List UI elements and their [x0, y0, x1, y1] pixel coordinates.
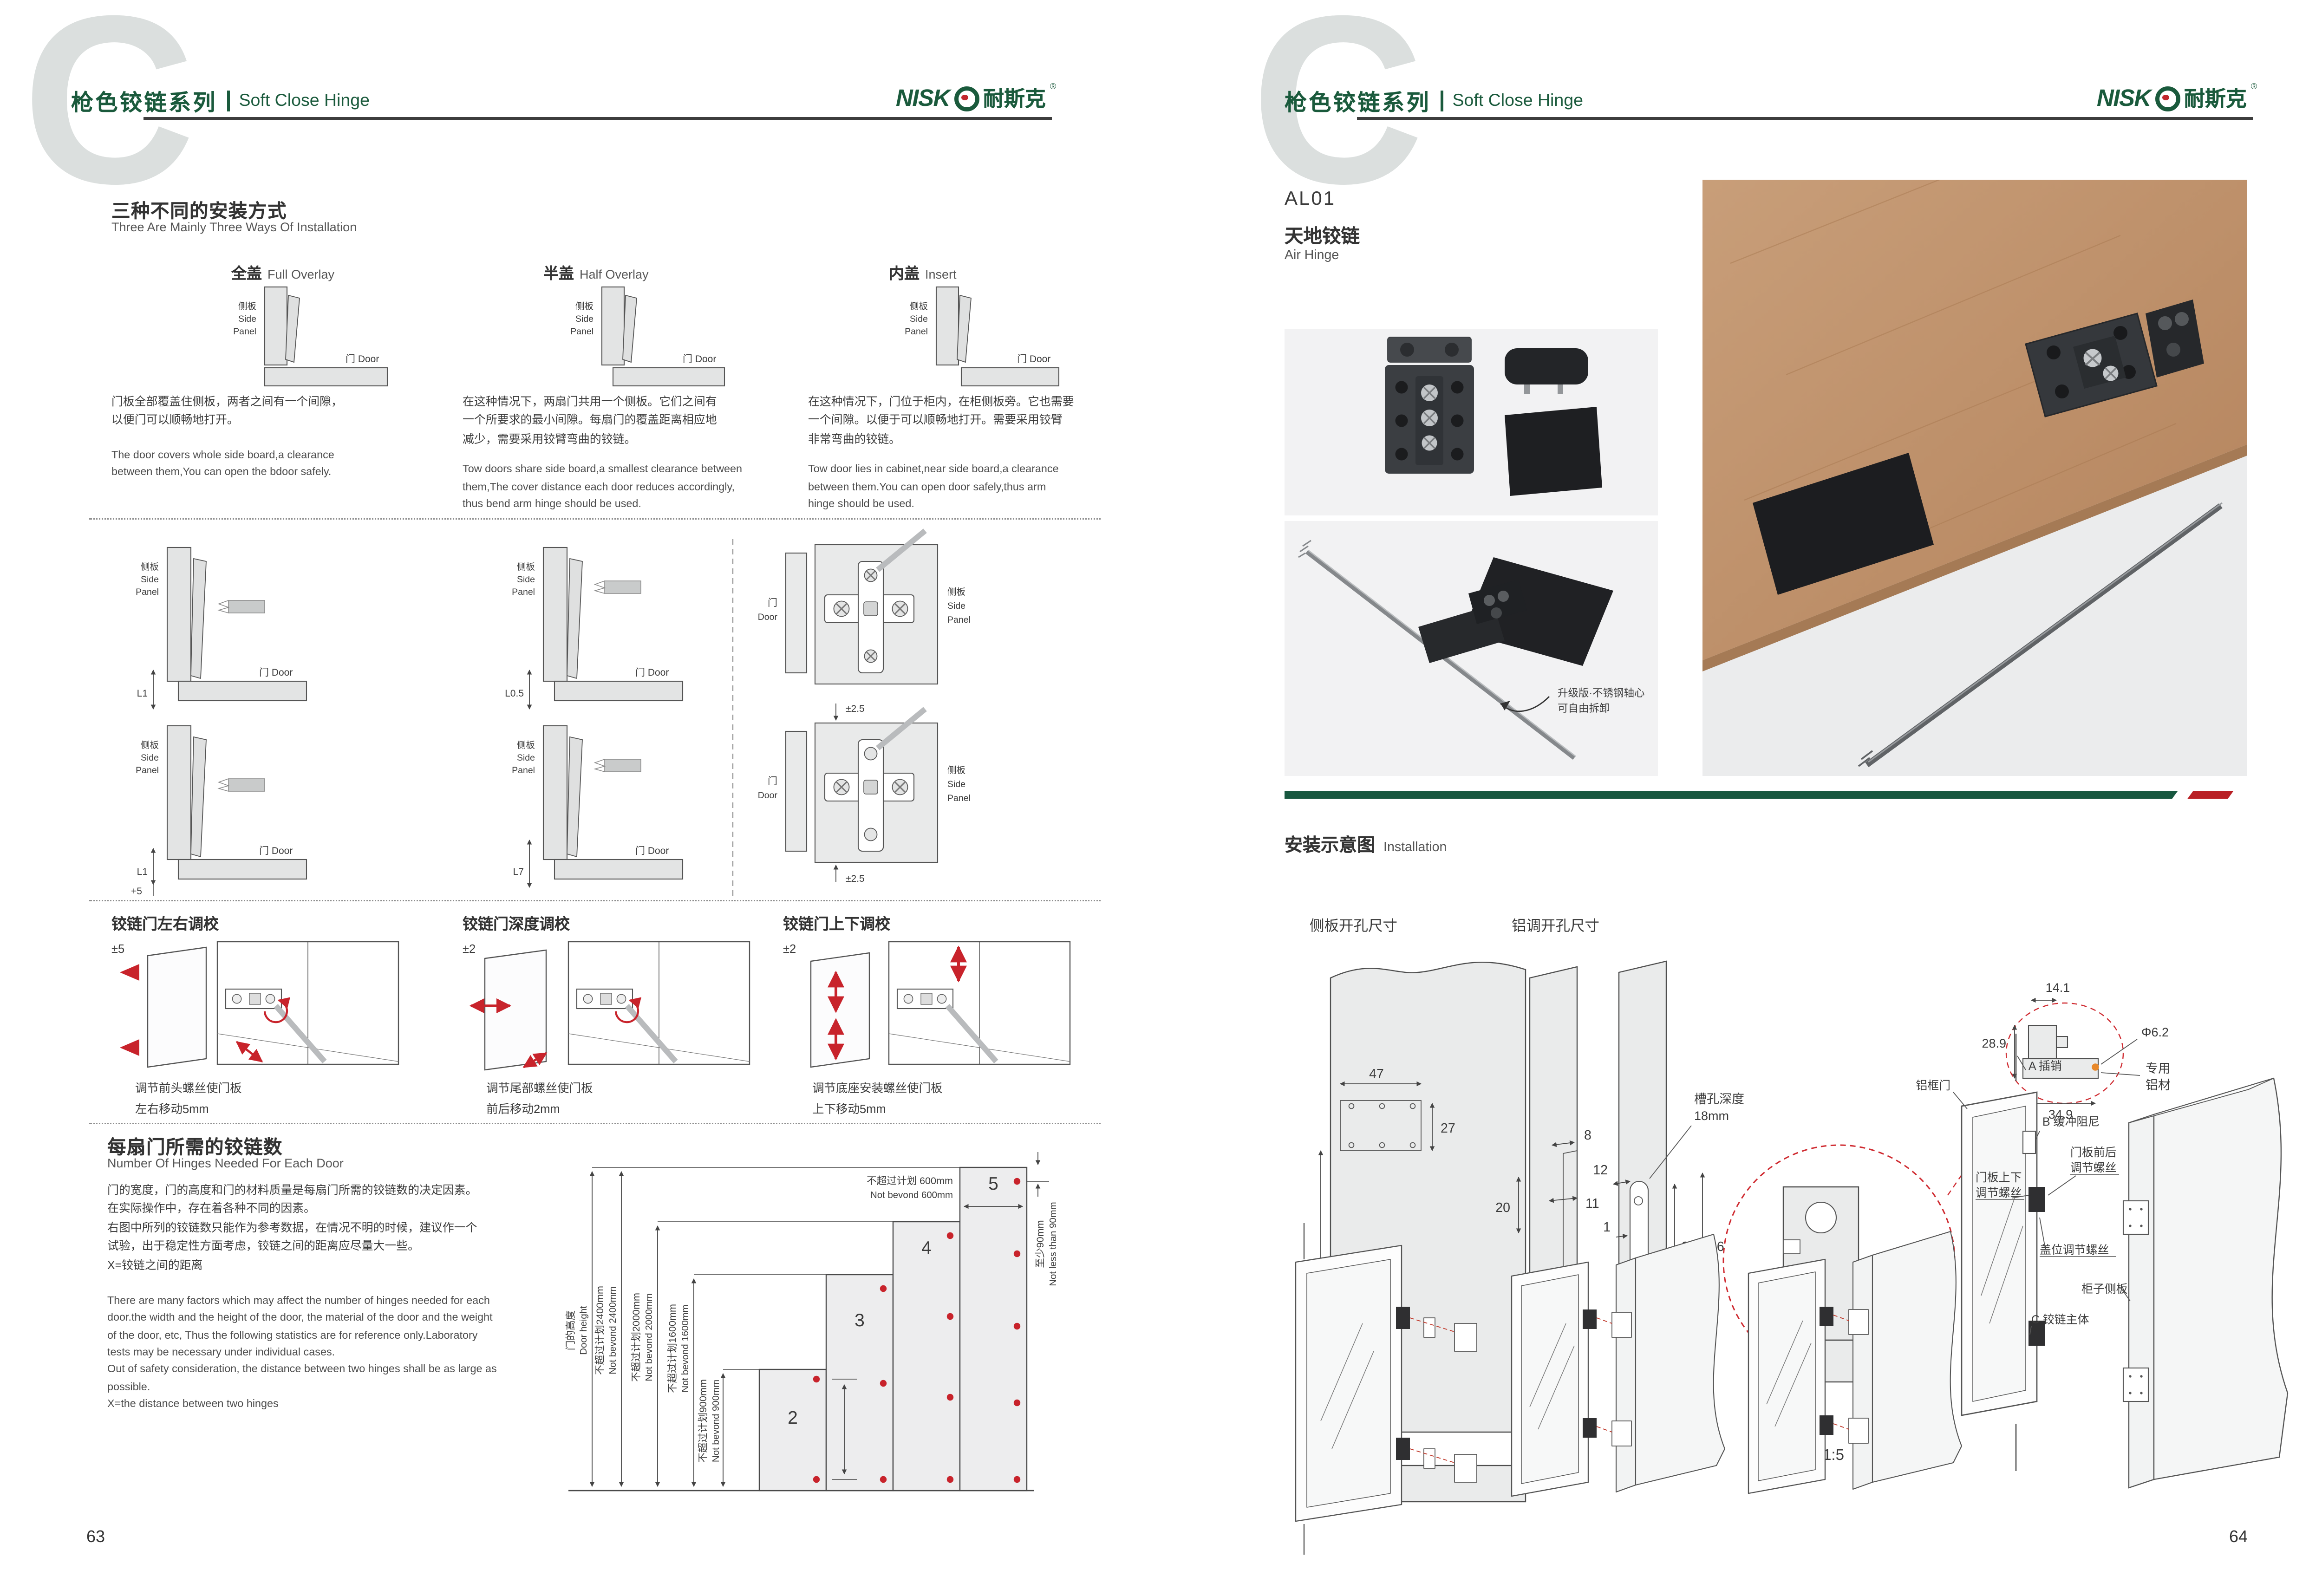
svg-text:A 插销: A 插销	[2028, 1060, 2062, 1073]
svg-text:Panel: Panel	[947, 793, 971, 803]
svg-text:Panel: Panel	[136, 765, 159, 775]
svg-text:L0.5: L0.5	[505, 688, 524, 699]
svg-text:门: 门	[768, 776, 777, 787]
hinge-count-para-zh: 门的宽度，门的高度和门的材料质量是每扇门所需的铰链数的决定因素。 在实际操作中，…	[107, 1181, 553, 1275]
diagram-half-overlay: 侧板 Side Panel 门 Door	[515, 281, 808, 396]
drill-bit-icon	[605, 759, 641, 772]
svg-text:不超过计划900mm: 不超过计划900mm	[697, 1379, 709, 1463]
cabinet-side	[2154, 1078, 2288, 1479]
svg-text:Side: Side	[947, 601, 965, 611]
svg-text:Door height: Door height	[579, 1306, 589, 1355]
header-rule-left	[143, 117, 1052, 119]
exploded-assembly-labeled: 铝框门 A 插销 B 缓冲阻尼 门板前后 调节螺丝 门板上下 调节螺丝 盖位调节…	[1916, 1034, 2288, 1488]
exploded-assembly-sequence	[1296, 1223, 1962, 1555]
page-header-right: 枪色铰链系列 Soft Close Hinge	[1285, 84, 1583, 117]
desc-half-overlay-en: Tow doors share side board,a smallest cl…	[463, 462, 804, 513]
desc-insert-zh: 在这种情况下，门位于柜内，在柜侧板旁。它也需要 一个间隙。以便于可以顺畅地打开。…	[808, 393, 1149, 449]
svg-text:侧板: 侧板	[947, 587, 965, 597]
svg-text:门 Door: 门 Door	[259, 667, 293, 678]
door-panel	[148, 947, 206, 1067]
svg-text:铝框门: 铝框门	[1916, 1079, 1950, 1092]
hinge-count-chart: 门的高度 Door height 不超过计划2400mm Not bevond …	[557, 1142, 1059, 1507]
svg-text:Side: Side	[517, 574, 535, 585]
svg-text:门 Door: 门 Door	[635, 667, 669, 678]
page-number-left: 63	[86, 1527, 105, 1546]
svg-text:侧板: 侧板	[238, 301, 256, 312]
svg-text:Not bevond 600mm: Not bevond 600mm	[870, 1190, 953, 1200]
arrow-left-icon	[120, 1039, 139, 1056]
hinge-count-heading-en: Number Of Hinges Needed For Each Door	[107, 1156, 344, 1170]
catalog-spread: C 枪色铰链系列 Soft Close Hinge NISK 耐斯克 ® 三种不…	[0, 0, 2322, 1596]
drill-bit-icon	[228, 779, 265, 791]
cabinet-front-edge	[2129, 1114, 2154, 1488]
series-title-en: Soft Close Hinge	[1453, 91, 1583, 110]
svg-text:Door: Door	[758, 612, 778, 622]
svg-text:门板前后: 门板前后	[2070, 1146, 2117, 1159]
type-label-half-overlay: 半盖 Half Overlay	[543, 262, 649, 284]
svg-text:Panel: Panel	[947, 615, 971, 625]
series-title-en: Soft Close Hinge	[239, 91, 370, 110]
page-number-right: 64	[2229, 1527, 2248, 1546]
type-label-insert: 内盖 Insert	[889, 262, 957, 284]
svg-text:8: 8	[1584, 1128, 1591, 1143]
svg-text:Not bevond 1600mm: Not bevond 1600mm	[680, 1304, 691, 1392]
bar-2-hinges	[759, 1369, 826, 1491]
svg-text:侧板: 侧板	[575, 301, 594, 312]
svg-text:Side: Side	[947, 779, 965, 789]
svg-text:Side: Side	[517, 753, 535, 763]
diagram-dim-L1: 侧板 Side Panel 门 Door L1	[136, 547, 307, 709]
hinge-arm-icon	[286, 295, 300, 362]
cabinet	[1853, 1255, 1872, 1489]
svg-text:门的高度: 门的高度	[565, 1310, 576, 1350]
svg-text:Door: Door	[758, 790, 778, 801]
svg-text:1:5: 1:5	[1823, 1446, 1844, 1463]
header-divider	[1441, 90, 1443, 111]
product-photo-rod: 升级版·不锈钢轴心 可自由拆卸	[1285, 521, 1658, 776]
svg-text:L7: L7	[513, 866, 524, 877]
svg-text:Side: Side	[575, 314, 594, 324]
divider-band-red	[2187, 791, 2233, 799]
logo-zh: 耐斯克	[983, 84, 1046, 113]
svg-text:2: 2	[788, 1408, 798, 1428]
svg-text:C 铰链主体: C 铰链主体	[2031, 1313, 2089, 1326]
drill-bit-icon	[228, 600, 265, 613]
drill-bit-icon	[605, 581, 641, 593]
svg-text:Panel: Panel	[570, 326, 594, 337]
bar-4-hinges	[893, 1222, 960, 1491]
logo-o-icon	[2155, 86, 2180, 111]
page-header-left: 枪色铰链系列 Soft Close Hinge	[71, 84, 370, 117]
adjust-title-ud: 铰链门上下调校	[783, 912, 890, 935]
diagram-mounting-plate-1: 门 Door 侧板 Side Panel	[758, 531, 971, 684]
svg-text:柜子侧板: 柜子侧板	[2081, 1283, 2128, 1296]
svg-text:4: 4	[921, 1238, 932, 1258]
desc-half-overlay-zh: 在这种情况下，两扇门共用一个侧板。它们之间有 一个所要求的最小间隙。每扇门的覆盖…	[463, 393, 804, 449]
svg-text:Panel: Panel	[233, 326, 256, 337]
svg-text:门: 门	[768, 598, 777, 608]
svg-text:槽孔深度: 槽孔深度	[1694, 1092, 1744, 1106]
installation-drawing: 侧板开孔尺寸 铝调开孔尺寸 47 27 77 25 8 20	[1240, 878, 2313, 1555]
side-drill-title: 侧板开孔尺寸	[1310, 917, 1397, 934]
svg-text:侧板: 侧板	[517, 562, 535, 572]
svg-text:+5: +5	[131, 886, 142, 897]
svg-text:Panel: Panel	[136, 587, 159, 597]
logo-latin: NISK	[896, 85, 950, 112]
svg-text:27: 27	[1441, 1121, 1455, 1136]
svg-text:不超过计划2400mm: 不超过计划2400mm	[594, 1286, 606, 1375]
svg-text:±2: ±2	[783, 943, 796, 956]
svg-text:12: 12	[1593, 1163, 1608, 1178]
desc-full-overlay-en: The door covers whole side board,a clear…	[111, 447, 446, 482]
logo-o-icon	[954, 86, 979, 111]
svg-text:3: 3	[854, 1310, 865, 1330]
hinge-count-heading-zh: 每扇门所需的铰链数	[107, 1131, 283, 1159]
svg-text:14.1: 14.1	[2046, 981, 2070, 995]
diagram-dim-L05: 侧板 Side Panel 门 Door L0.5	[505, 547, 683, 709]
hinge-cap	[1505, 348, 1588, 384]
svg-text:B 缓冲阻尼: B 缓冲阻尼	[2042, 1115, 2100, 1128]
adjust-note-ud: 调节底座安装螺丝使门板 上下移动5mm	[812, 1078, 943, 1120]
photo-main-illustration	[1702, 180, 2247, 776]
dotted-divider-1	[89, 518, 1101, 520]
diagram-full-overlay: 侧板 Side Panel 门 Door	[178, 281, 471, 396]
damper	[2023, 1131, 2035, 1153]
svg-text:5: 5	[988, 1174, 998, 1194]
svg-text:L1: L1	[137, 688, 148, 699]
adjust-note-depth: 调节尾部螺丝使门板 前后移动2mm	[486, 1078, 593, 1120]
svg-text:至少90mm: 至少90mm	[1034, 1220, 1046, 1268]
svg-text:侧板: 侧板	[141, 740, 159, 750]
product-photo-parts	[1285, 329, 1658, 515]
product-name-en: Air Hinge	[1285, 248, 1339, 263]
series-title-zh: 枪色铰链系列	[1285, 84, 1431, 117]
svg-text:门 Door: 门 Door	[1017, 354, 1050, 365]
hinge-count-para-en: There are many factors which may affect …	[107, 1293, 553, 1413]
divider-band-green	[1285, 791, 2178, 799]
alu-drill-title: 铝调开孔尺寸	[1512, 917, 1599, 934]
svg-text:侧板: 侧板	[141, 562, 159, 572]
header-divider	[227, 90, 229, 111]
svg-text:门 Door: 门 Door	[683, 354, 716, 365]
nisko-logo-right: NISK 耐斯克 ®	[2097, 84, 2257, 113]
svg-text:升级版·不锈钢轴心: 升级版·不锈钢轴心	[1558, 687, 1645, 699]
dotted-divider-2	[89, 900, 1101, 901]
series-title-zh: 枪色铰链系列	[71, 84, 217, 117]
svg-text:不超过计划1600mm: 不超过计划1600mm	[666, 1304, 678, 1393]
svg-text:47: 47	[1369, 1067, 1384, 1081]
svg-text:Side: Side	[238, 314, 256, 324]
desc-insert: 在这种情况下，门位于柜内，在柜侧板旁。它也需要 一个间隙。以便于可以顺畅地打开。…	[808, 393, 1149, 513]
svg-text:±2: ±2	[463, 943, 476, 956]
hinge-arm-icon	[957, 295, 971, 362]
svg-text:Panel: Panel	[512, 587, 535, 597]
svg-text:盖位调节螺丝: 盖位调节螺丝	[2040, 1244, 2109, 1257]
svg-text:门 Door: 门 Door	[346, 354, 379, 365]
svg-text:28.9: 28.9	[1982, 1036, 2006, 1050]
installation-heading: 安装示意图 Installation	[1285, 830, 1447, 857]
desc-full-overlay-zh: 门板全部覆盖住侧板，两者之间有一个间隙， 以便门可以顺畅地打开。	[111, 393, 446, 430]
svg-text:L1: L1	[137, 866, 148, 877]
logo-red-dot-icon	[2162, 94, 2169, 100]
svg-text:Panel: Panel	[512, 765, 535, 775]
svg-text:Panel: Panel	[905, 326, 928, 337]
svg-text:Φ6.2: Φ6.2	[2141, 1025, 2169, 1039]
product-photo-main	[1702, 180, 2247, 776]
arrow-left-icon	[120, 964, 139, 981]
svg-text:Side: Side	[141, 753, 159, 763]
svg-text:±5: ±5	[111, 943, 124, 956]
svg-text:门 Door: 门 Door	[635, 846, 669, 856]
svg-text:1: 1	[1603, 1220, 1611, 1235]
product-code: AL01	[1285, 187, 1336, 209]
svg-text:Not bevond 2400mm: Not bevond 2400mm	[608, 1286, 618, 1374]
nisko-logo-left: NISK 耐斯克 ®	[896, 84, 1056, 113]
desc-half-overlay: 在这种情况下，两扇门共用一个侧板。它们之间有 一个所要求的最小间隙。每扇门的覆盖…	[463, 393, 804, 513]
door-panel	[485, 950, 546, 1070]
svg-text:可自由拆卸: 可自由拆卸	[1558, 703, 1610, 714]
svg-text:20: 20	[1495, 1200, 1510, 1215]
logo-registered-mark: ®	[1050, 84, 1056, 92]
cabinet	[1616, 1258, 1636, 1492]
svg-text:11: 11	[1585, 1196, 1599, 1211]
cover-pad	[1505, 407, 1602, 496]
svg-text:门 Door: 门 Door	[259, 846, 293, 856]
svg-text:铝材: 铝材	[2146, 1078, 2171, 1092]
door-panel	[811, 953, 869, 1067]
section-installation-ways-heading-en: Three Are Mainly Three Ways Of Installat…	[111, 220, 357, 234]
desc-full-overlay: 门板全部覆盖住侧板，两者之间有一个间隙， 以便门可以顺畅地打开。 The doo…	[111, 393, 446, 482]
adjust-title-lr: 铰链门左右调校	[111, 912, 219, 935]
adjust-diagram-ud: ±2	[780, 933, 1101, 1073]
svg-text:门板上下: 门板上下	[1976, 1171, 2022, 1184]
overlay-dimension-diagrams: 侧板 Side Panel 门 Door L1 侧板 Side Panel 门 …	[89, 539, 1120, 896]
svg-text:不超过计划2000mm: 不超过计划2000mm	[630, 1293, 642, 1382]
svg-text:Not bevond 2000mm: Not bevond 2000mm	[644, 1293, 654, 1381]
hinge-arm-icon	[623, 295, 637, 362]
type-label-full-overlay: 全盖 Full Overlay	[231, 262, 334, 284]
svg-text:±2.5: ±2.5	[846, 873, 865, 884]
photo-parts-illustration	[1285, 329, 1658, 515]
diagram-mounting-plate-2: 门 Door 侧板 Side Panel ±2.5 ±2.5	[758, 704, 971, 884]
svg-text:Not bevond 900mm: Not bevond 900mm	[711, 1380, 721, 1462]
svg-text:18mm: 18mm	[1694, 1109, 1729, 1123]
svg-text:侧板: 侧板	[910, 301, 928, 312]
svg-text:侧板: 侧板	[517, 740, 535, 750]
adjust-diagram-lr: ±5	[109, 933, 429, 1073]
desc-insert-en: Tow door lies in cabinet,near side board…	[808, 462, 1149, 513]
svg-text:±2.5: ±2.5	[846, 704, 865, 714]
adjust-title-depth: 铰链门深度调校	[463, 912, 570, 935]
diagram-dim-L7: 侧板 Side Panel 门 Door L7	[512, 726, 683, 887]
section-installation-ways-heading-zh: 三种不同的安装方式	[111, 195, 287, 223]
svg-text:专用: 专用	[2146, 1062, 2171, 1075]
adjust-note-lr: 调节前头螺丝使门板 左右移动5mm	[135, 1078, 242, 1120]
logo-red-dot-icon	[961, 94, 968, 100]
catalog-canvas: C 枪色铰链系列 Soft Close Hinge NISK 耐斯克 ® 三种不…	[0, 0, 2322, 1596]
diagram-insert: 侧板 Side Panel 门 Door	[850, 281, 1142, 396]
svg-text:侧板: 侧板	[947, 765, 965, 775]
svg-text:Side: Side	[910, 314, 928, 324]
adjust-diagram-depth: ±2	[460, 933, 780, 1073]
svg-text:Not less than 90mm: Not less than 90mm	[1048, 1202, 1058, 1286]
hinge	[2028, 1187, 2045, 1212]
photo-rod-illustration: 升级版·不锈钢轴心 可自由拆卸	[1285, 521, 1658, 776]
product-name-zh: 天地铰链	[1285, 220, 1360, 248]
dotted-divider-3	[89, 1123, 1101, 1124]
svg-text:不超过计划 600mm: 不超过计划 600mm	[867, 1175, 953, 1186]
phi62-hole-dot	[2092, 1063, 2099, 1071]
svg-text:调节螺丝: 调节螺丝	[2070, 1161, 2117, 1174]
header-rule-right	[1357, 117, 2253, 119]
svg-text:Side: Side	[141, 574, 159, 585]
diagram-dim-L1-plus5: 侧板 Side Panel 门 Door L1 +5	[131, 726, 307, 897]
